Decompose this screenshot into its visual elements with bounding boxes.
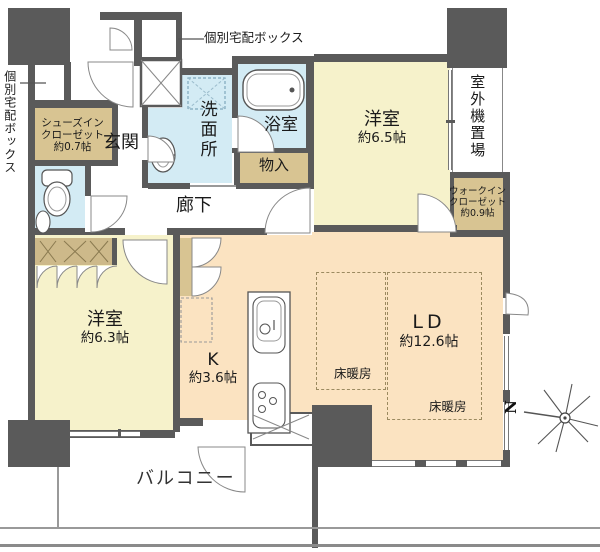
bedroom1-label: 洋室 約6.5帖 (314, 102, 450, 154)
wic-label: ウォークイン クローゼット 約0.9帖 (452, 179, 503, 228)
toilet-door (91, 196, 127, 232)
outdoor-unit-label: 室外機置場 (468, 74, 485, 159)
closet-hatch (40, 241, 108, 262)
wic-line3: 約0.9帖 (460, 209, 494, 220)
kitchen-counter (248, 292, 290, 433)
shoes-closet-line1: シューズイン (41, 117, 103, 129)
entrance-label: 玄関 (94, 132, 148, 154)
living-dining-name: LD (412, 312, 445, 334)
living-dining-size: 約12.6帖 (399, 334, 458, 350)
bedroom2-door (123, 240, 167, 284)
folding-door-2 (57, 266, 77, 288)
compass: N (502, 384, 598, 452)
shoes-closet-line3: 約0.7帖 (54, 141, 92, 153)
floor-plan: N 個別宅配ボックス 個別宅配ボックス シューズイン クローゼット 約0.7帖 … (0, 0, 600, 552)
toilet (36, 170, 72, 233)
bedroom2-label: 洋室 約6.3帖 (35, 302, 175, 354)
entrance-door (88, 62, 133, 107)
ld-door (265, 188, 310, 233)
ld-side-door (506, 293, 528, 315)
delivery-box-top-label: 個別宅配ボックス (204, 31, 304, 45)
stove (253, 383, 285, 428)
living-dining-label: LD 約12.6帖 (368, 306, 490, 356)
washroom-label: 洗面所 (196, 100, 216, 160)
washroom-door (148, 136, 174, 162)
balcony-label: バルコニー (136, 469, 236, 490)
bathtub (243, 70, 304, 110)
corridor-label: 廊下 (158, 194, 230, 218)
cabinet-door-1 (192, 238, 221, 267)
kitchen-name: K (207, 351, 218, 371)
cabinet-door-2 (192, 267, 221, 296)
delivery-box-left-label: 個別宅配ボックス (2, 70, 16, 174)
pipe-shaft (141, 60, 181, 106)
kitchen-size: 約3.6帖 (189, 371, 237, 387)
storage-label: 物入 (243, 156, 305, 176)
door-gap (85, 196, 91, 232)
folding-door-3 (77, 266, 97, 288)
delivery-box-door (110, 28, 132, 50)
folding-door-1 (37, 266, 57, 288)
bathroom-label: 浴室 (255, 116, 307, 136)
kitchen-label: K 約3.6帖 (178, 346, 248, 392)
floor-heating-label-2: 床暖房 (429, 400, 467, 414)
bedroom2-name: 洋室 (87, 310, 123, 331)
fixtures-overlay: N (0, 0, 600, 552)
compass-north-label: N (502, 400, 520, 414)
refrigerator-space (181, 298, 212, 342)
bedroom2-size: 約6.3帖 (81, 331, 129, 347)
folding-door-4 (97, 266, 117, 288)
hand-basin (36, 211, 50, 233)
bedroom1-name: 洋室 (364, 110, 400, 131)
floor-heating-label-1: 床暖房 (334, 367, 372, 381)
bedroom1-size: 約6.5帖 (358, 131, 406, 147)
